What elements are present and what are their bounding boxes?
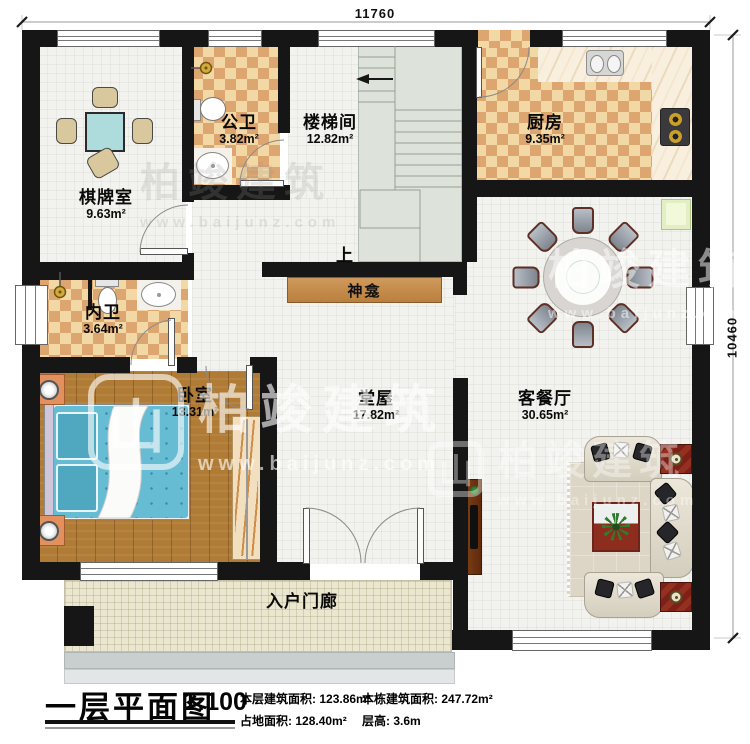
- chess-chair-left: [56, 118, 77, 144]
- window: [80, 562, 218, 581]
- wall: [182, 185, 290, 200]
- wall: [182, 30, 194, 202]
- window: [15, 285, 48, 345]
- door-leaf-entry-right: [417, 508, 424, 564]
- ornament-icon: [670, 591, 683, 604]
- wall: [692, 345, 710, 650]
- wall: [22, 345, 40, 562]
- porch-column: [64, 606, 94, 646]
- window: [318, 30, 435, 47]
- headboard: [45, 405, 54, 519]
- plan-scale: 1:100: [183, 688, 247, 717]
- lamp-icon: [39, 521, 59, 541]
- stat-storey-height: 层高: 3.6m: [362, 712, 421, 729]
- door-leaf-public-bath: [240, 180, 284, 187]
- room-label-stairwell: 楼梯间12.82m²: [303, 113, 357, 146]
- porch-step-1: [64, 652, 455, 669]
- lamp-icon: [39, 380, 59, 400]
- coffee-table: [592, 502, 640, 552]
- floor-plan-canvas: 神龛: [0, 0, 750, 744]
- wall: [278, 30, 290, 133]
- room-label-public-bath: 公卫3.82m²: [219, 113, 259, 146]
- staircase-area: [358, 46, 462, 262]
- sink-basin-left: [590, 55, 604, 73]
- dining-chair: [627, 267, 654, 289]
- private-bath-sink: [141, 282, 176, 307]
- room-label-porch: 入户门廊: [266, 592, 338, 611]
- wall: [652, 630, 710, 650]
- public-bath-sink: [196, 152, 229, 179]
- kitchen-sink: [586, 50, 624, 76]
- wall: [260, 373, 277, 562]
- dimension-top: 11760: [355, 6, 395, 21]
- sink-drain: [157, 293, 161, 297]
- room-label-main-hall: 堂屋17.82m²: [353, 389, 400, 422]
- door-leaf-entry-left: [303, 508, 310, 564]
- wall: [453, 378, 468, 650]
- pillow-1: [56, 412, 98, 460]
- bed: [44, 404, 190, 520]
- private-bath-toilet-tank: [95, 279, 119, 287]
- wall: [22, 262, 194, 280]
- wall: [453, 262, 467, 295]
- wall: [22, 357, 130, 373]
- stair-up-label: 上: [336, 246, 354, 265]
- stat-building-area: 本栋建筑面积: 247.72m²: [362, 690, 493, 707]
- end-table-bottom: [660, 582, 692, 612]
- stove-burner-2: [669, 130, 682, 143]
- title-underline-thin: [45, 727, 235, 729]
- room-label-private-bath: 内卫3.64m²: [83, 303, 123, 336]
- wall: [262, 30, 318, 47]
- door-leaf-private-bath: [168, 318, 175, 366]
- wall: [692, 30, 710, 287]
- stove-burner-1: [669, 113, 682, 126]
- shrine-shelf: 神龛: [287, 277, 442, 303]
- wall: [462, 180, 710, 197]
- wall: [530, 30, 562, 47]
- kitchen-door-floor: [478, 30, 530, 48]
- fridge-highlight: [666, 203, 686, 225]
- kitchen-stove: [660, 108, 690, 146]
- wall: [218, 562, 310, 580]
- ornament-icon: [670, 453, 683, 466]
- room-label-bedroom: 卧室13.31m²: [172, 386, 219, 419]
- wall: [462, 30, 477, 262]
- sofa-pillow: [612, 441, 629, 458]
- stat-land-area: 占地面积: 128.40m²: [240, 712, 347, 729]
- window: [562, 30, 667, 47]
- pillow-2: [56, 464, 98, 512]
- window: [512, 630, 652, 651]
- chess-chair-right: [132, 118, 153, 144]
- wall: [22, 562, 80, 580]
- dining-chair: [513, 267, 540, 289]
- sink-basin-right: [607, 55, 621, 73]
- wall: [177, 357, 197, 373]
- dining-table-ring: [566, 260, 600, 294]
- tv-cabinet: [466, 479, 482, 575]
- shrine-label: 神龛: [347, 280, 381, 301]
- title-underline-thick: [45, 720, 235, 724]
- tv-icon: [470, 505, 478, 549]
- room-label-kitchen: 厨房9.35m²: [525, 113, 565, 146]
- door-leaf-kitchen: [476, 47, 482, 98]
- door-leaf-bedroom: [246, 365, 253, 410]
- window: [57, 30, 160, 47]
- dining-chair: [572, 321, 594, 348]
- mahjong-table: [85, 112, 125, 152]
- wall: [22, 30, 40, 285]
- small-plant-icon: [470, 486, 479, 495]
- dining-chair: [572, 207, 594, 234]
- room-label-living-dining: 客餐厅30.65m²: [518, 389, 572, 422]
- wall: [262, 262, 453, 277]
- fridge: [661, 199, 691, 230]
- room-label-chess: 棋牌室9.63m²: [79, 188, 133, 221]
- window: [208, 30, 262, 47]
- chess-chair-top: [92, 87, 118, 108]
- sofa-pillow: [662, 504, 681, 523]
- dimension-right: 10460: [725, 308, 740, 368]
- porch-floor: [64, 580, 452, 652]
- wardrobe-rod: [246, 419, 248, 559]
- stat-floor-area: 本层建筑面积: 123.86m²: [240, 690, 371, 707]
- wardrobe: [232, 416, 261, 560]
- window: [686, 287, 714, 345]
- sofa-pillow: [616, 581, 634, 599]
- potted-plant-icon: [602, 513, 630, 541]
- wall: [250, 357, 277, 373]
- sink-drain: [211, 164, 215, 168]
- end-table-top: [660, 444, 692, 474]
- door-leaf-chess-room: [140, 248, 188, 255]
